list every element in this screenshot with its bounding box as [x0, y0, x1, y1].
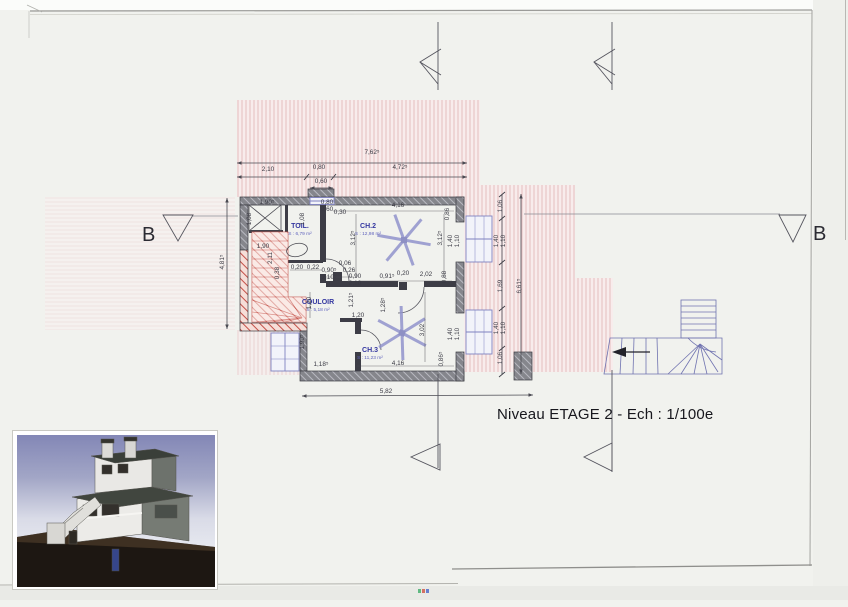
dimension-label: 0,38: [274, 266, 281, 279]
dimension-label: 0,80: [313, 164, 326, 171]
dimension-label: 0,60: [315, 178, 328, 185]
dimension-label: 1,20: [306, 296, 313, 309]
door-post: [399, 282, 407, 290]
scanned-plan-sheet: B B TOIL.S : 6,79 m²CH.2S : 12,98 m²COUL…: [0, 0, 848, 600]
dimension-label: 0,22: [307, 264, 320, 271]
section-marker-top-left: [420, 22, 441, 90]
dimension-label: 4,16: [392, 202, 405, 209]
section-marker-top-right: [594, 22, 615, 90]
3d-house-render: [17, 435, 215, 587]
dimension-label: 1,40: [447, 234, 454, 247]
dimension-label: 0,06: [339, 260, 352, 267]
dimension-label: 3,12⁵: [350, 230, 357, 245]
dimension-label: 0,80: [321, 199, 334, 206]
dimension-label: 1,08: [246, 212, 253, 225]
dimension-label: 2,02: [420, 271, 433, 278]
3d-house-render-thumbnail: [12, 430, 218, 590]
stair-direction-arrow: [612, 347, 650, 357]
dimension-label: 1,21⁵: [348, 292, 355, 307]
chimney-block: [308, 189, 334, 197]
section-label-b-left: B: [142, 224, 155, 246]
dimension-label: 1,69: [497, 279, 504, 292]
dimension-label: 1,06: [497, 351, 504, 364]
dimension-label: 0,30: [334, 209, 347, 216]
dimension-label: 1,18⁵: [313, 361, 328, 368]
dimension-label: 0,90: [349, 273, 362, 280]
dimension-label: 6,61⁵: [516, 278, 523, 293]
dimension-label: 1,90⁵: [259, 199, 274, 206]
dimension-label: 0,20: [397, 270, 410, 277]
ceiling-fan-icon: [377, 215, 430, 266]
drawing-title: Niveau ETAGE 2 - Ech : 1/100e: [497, 406, 713, 423]
section-marker-b-right: [779, 215, 806, 242]
dimension-label: 0,86⁵: [438, 351, 445, 366]
dimension-label: 1,40: [493, 321, 500, 334]
wc-symbol: [285, 241, 308, 258]
section-marker-bottom-left: [411, 374, 440, 470]
dimension-label: 0,90⁵: [321, 267, 336, 274]
section-label-b-right: B: [813, 223, 826, 245]
room-name-label: CH.3: [362, 347, 378, 354]
dimension-label: 0,91⁵: [379, 273, 394, 280]
scanner-watermark: [418, 589, 432, 595]
dimension-label: 1,20: [352, 312, 365, 319]
dimension-label: 1,10: [454, 327, 461, 340]
roof-hatch-areas: [45, 100, 613, 375]
dimension-label: 2,10⁵: [321, 274, 336, 281]
dimension-label: 1,10: [500, 321, 507, 334]
dimension-label: 0,86: [444, 207, 451, 220]
dimension-label: 1,40: [493, 234, 500, 247]
room-area-label: S : 12,98 m²: [355, 231, 382, 237]
dimension-label: 1,40: [447, 327, 454, 340]
dimension-label: 4,72⁵: [392, 164, 407, 171]
dimension-label: 1,10: [454, 234, 461, 247]
room-area-label: S : 6,79 m²: [288, 231, 312, 237]
dimension-label: 1,08: [299, 212, 306, 225]
room-name-label: CH.2: [360, 223, 376, 230]
dimension-label: 4,16: [392, 360, 405, 367]
dimension-label: 1,06: [497, 199, 504, 212]
exterior-landing-wall: [514, 352, 532, 380]
dimension-label: 3,12⁵: [437, 230, 444, 245]
roof-hatch-top: [237, 100, 480, 197]
dimension-label: 0,88: [441, 270, 448, 283]
room-area-label: S : 11,23 m²: [357, 355, 383, 361]
dimension-label: 1,90⁵: [299, 334, 306, 349]
dimension-label: 3,02: [419, 323, 426, 336]
dimension-label: 0,20: [291, 264, 304, 271]
exterior-staircase: [604, 300, 722, 374]
dimension-label: 4,81⁵: [219, 254, 226, 269]
dimension-label: 0,60: [321, 206, 334, 213]
dimension-label: 2,10: [349, 280, 362, 287]
dimension-label: 2,11: [267, 252, 274, 264]
dimension-label: 1,28⁵: [380, 297, 387, 312]
dimension-label: 7,62⁵: [364, 149, 379, 156]
dimension-label: 5,82: [380, 388, 393, 395]
dimension-label: 1,10: [500, 234, 507, 247]
dimension-label: 2,10: [262, 166, 275, 173]
dimension-label: 1,90: [257, 243, 270, 250]
roof-hatch-left: [45, 197, 235, 330]
